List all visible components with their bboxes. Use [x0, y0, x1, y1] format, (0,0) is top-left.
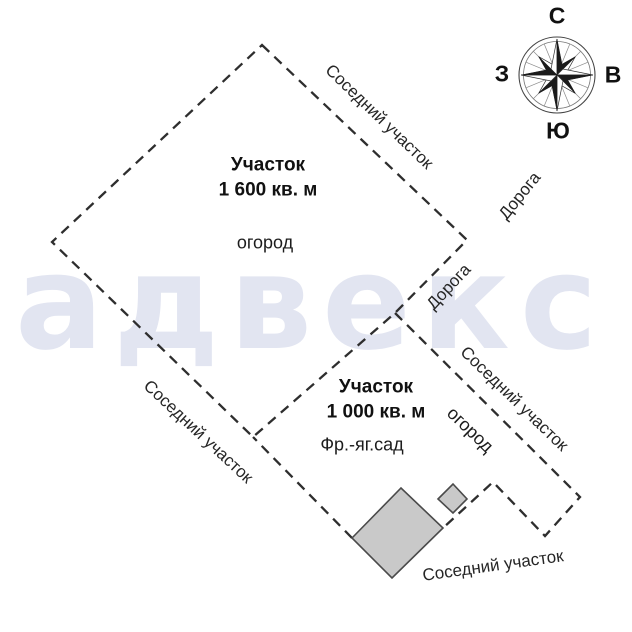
- plot2-title-block: Участок 1 000 кв. м: [327, 375, 426, 424]
- plan-drawing: [0, 0, 632, 632]
- compass-east-label: В: [605, 62, 622, 89]
- compass-west-label: З: [495, 61, 509, 88]
- plot2-title: Участок: [327, 375, 426, 400]
- compass-north-label: С: [549, 3, 566, 30]
- plot1-title: Участок: [219, 153, 318, 178]
- plot1-area: 1 600 кв. м: [219, 178, 318, 203]
- plot1-feature-label: огород: [237, 233, 293, 254]
- compass-rose: [519, 37, 595, 113]
- compass-star: [521, 39, 593, 111]
- plot1-title-block: Участок 1 600 кв. м: [219, 153, 318, 202]
- plot2-area: 1 000 кв. м: [327, 400, 426, 425]
- land-plot-plan: адвекс: [0, 0, 632, 632]
- compass-south-label: Ю: [546, 118, 570, 145]
- plot2-garden-label: Фр.-яг.сад: [320, 435, 403, 456]
